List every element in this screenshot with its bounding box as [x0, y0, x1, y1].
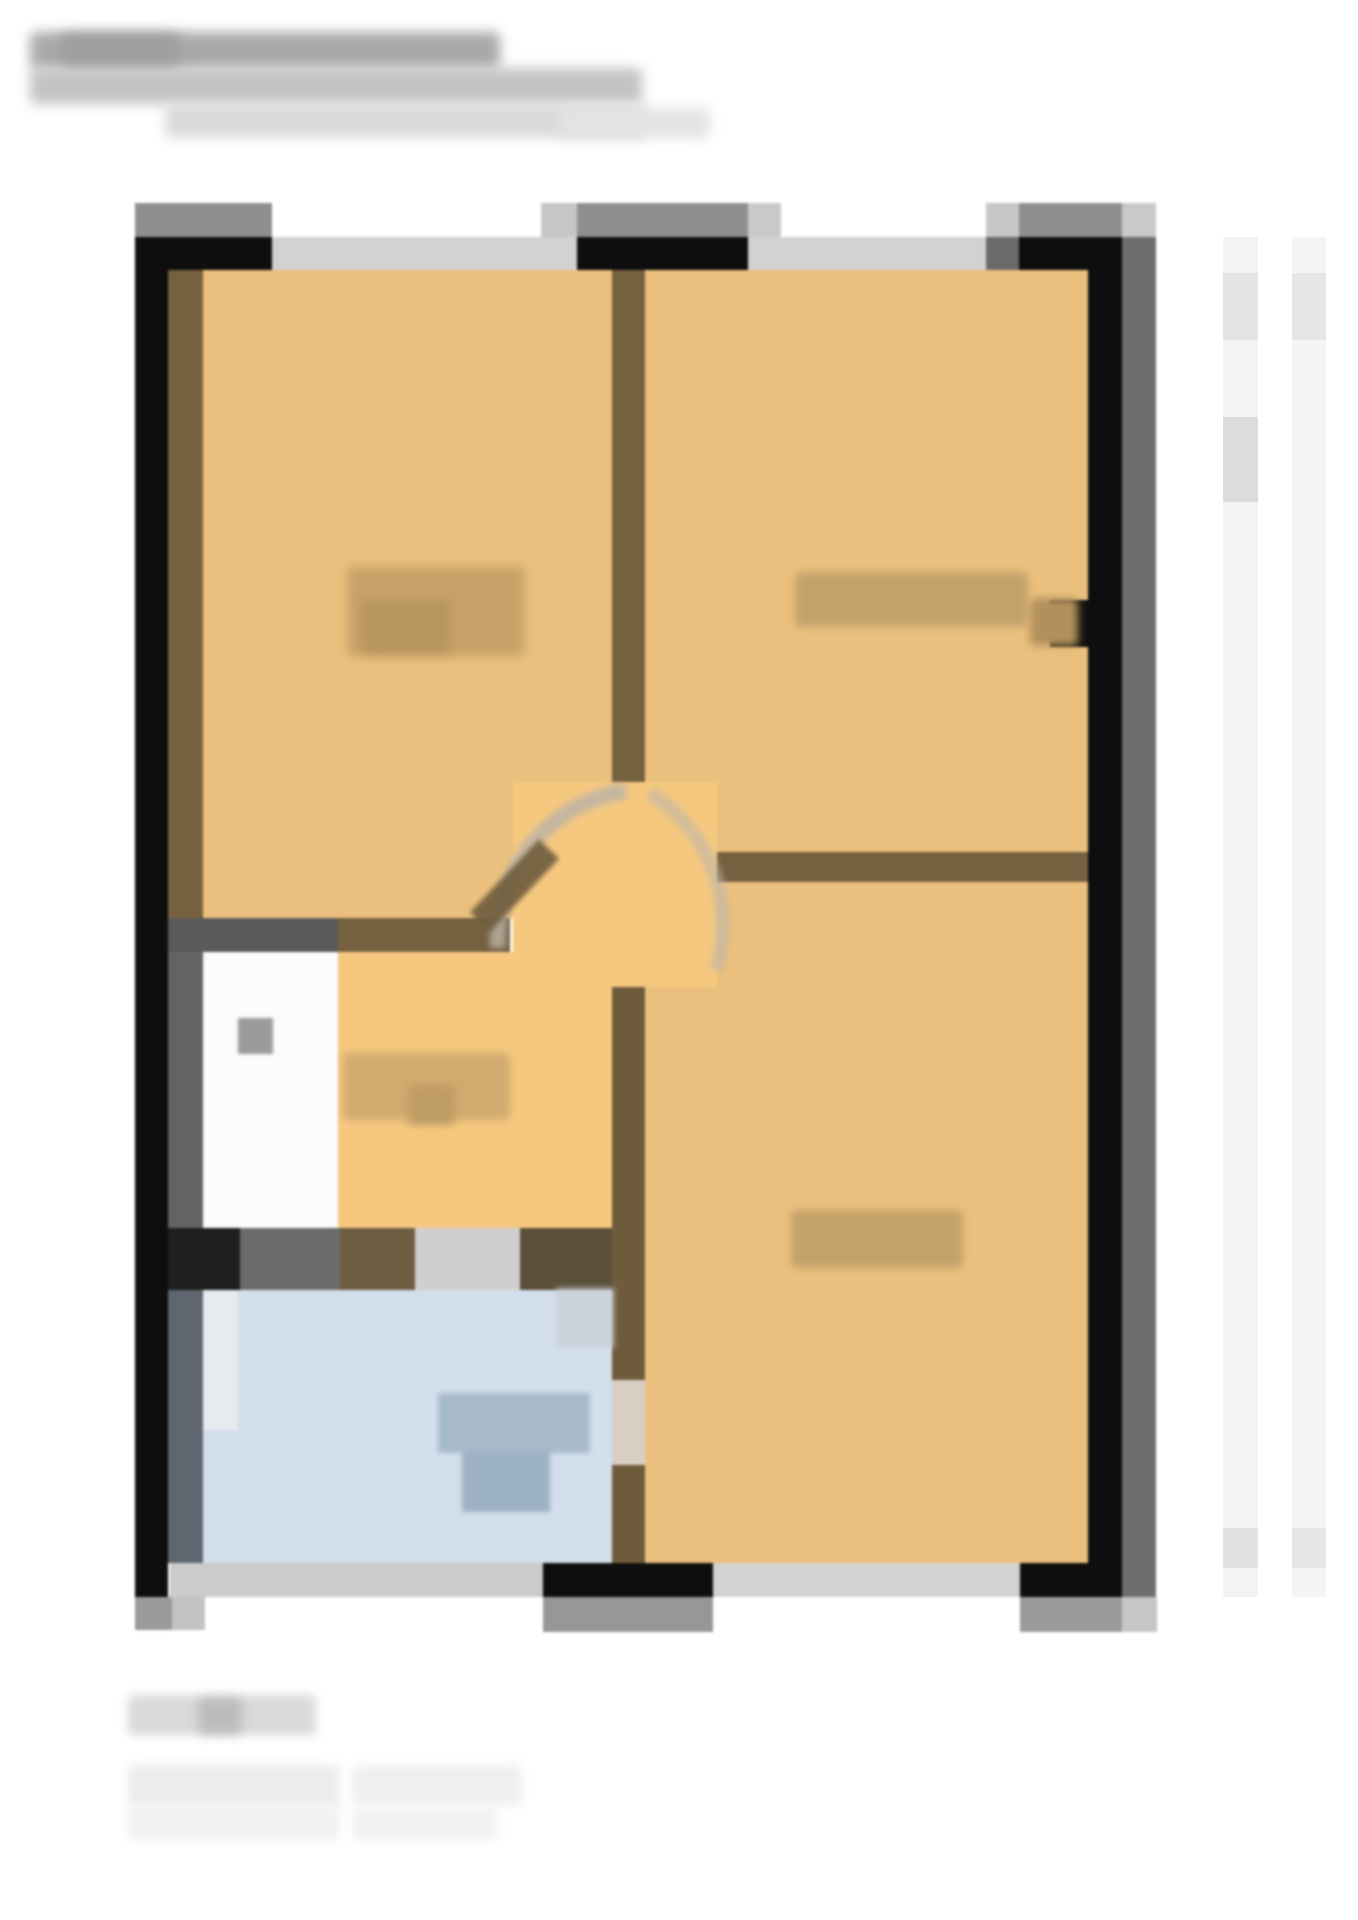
margin-strip-2-seg-c [1292, 1528, 1326, 1568]
margin-strip-2-seg-a [1292, 273, 1326, 340]
right-margin-annotations [0, 0, 1358, 1920]
margin-strip-2 [1292, 237, 1326, 1597]
margin-strip-1-seg-c [1223, 1528, 1258, 1568]
margin-strip-1-seg-a [1223, 273, 1258, 340]
margin-strip-1-seg-b [1223, 417, 1258, 502]
floor-plan-screenshot [0, 0, 1358, 1920]
